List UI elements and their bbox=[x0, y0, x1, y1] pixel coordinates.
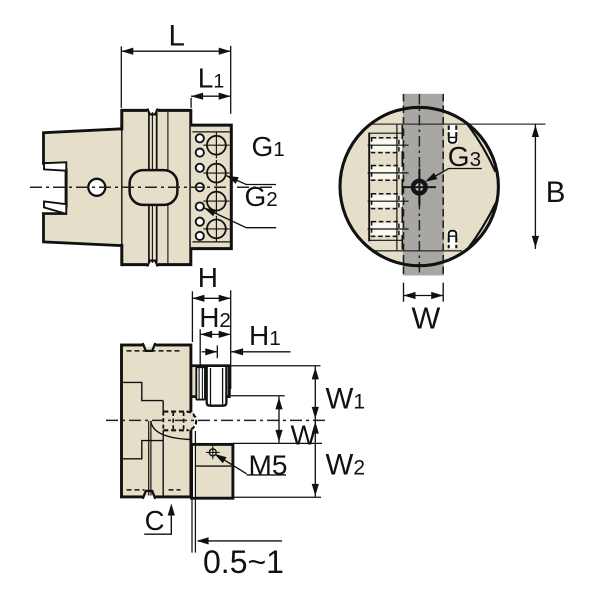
svg-text:0.5~1: 0.5~1 bbox=[203, 544, 284, 580]
svg-text:M5: M5 bbox=[249, 450, 288, 481]
svg-text:C: C bbox=[145, 505, 165, 536]
svg-text:W: W bbox=[412, 302, 441, 336]
svg-text:B: B bbox=[546, 176, 566, 209]
svg-text:L: L bbox=[169, 20, 185, 53]
svg-text:H: H bbox=[198, 262, 218, 293]
svg-text:W: W bbox=[291, 420, 318, 451]
